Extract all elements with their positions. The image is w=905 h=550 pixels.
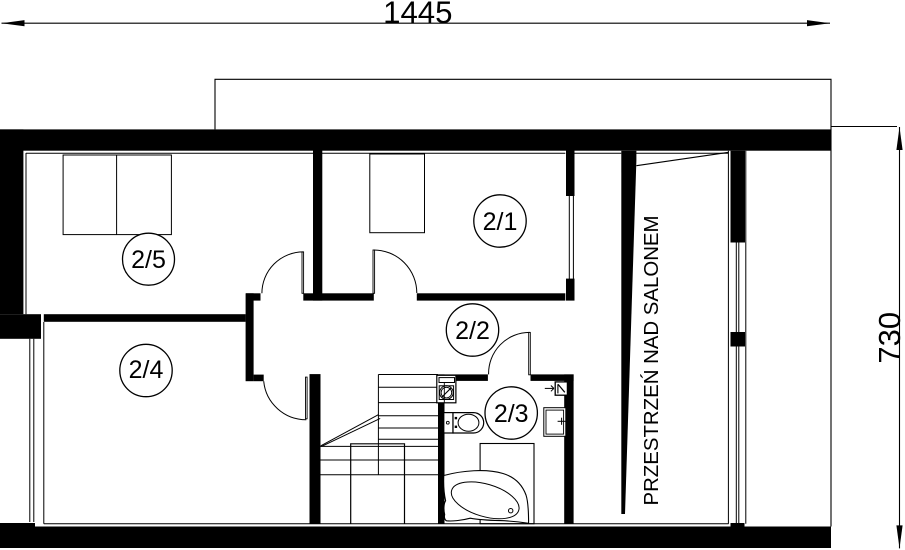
svg-text:PRZESTRZEŃ NAD SALONEM: PRZESTRZEŃ NAD SALONEM [640,215,663,505]
svg-text:1445: 1445 [383,0,452,30]
svg-text:2/4: 2/4 [129,356,164,384]
svg-text:2/2: 2/2 [455,317,490,345]
svg-text:2/5: 2/5 [131,246,166,274]
svg-text:2/3: 2/3 [494,400,529,428]
svg-text:730: 730 [872,312,905,364]
svg-text:2/1: 2/1 [483,208,518,236]
